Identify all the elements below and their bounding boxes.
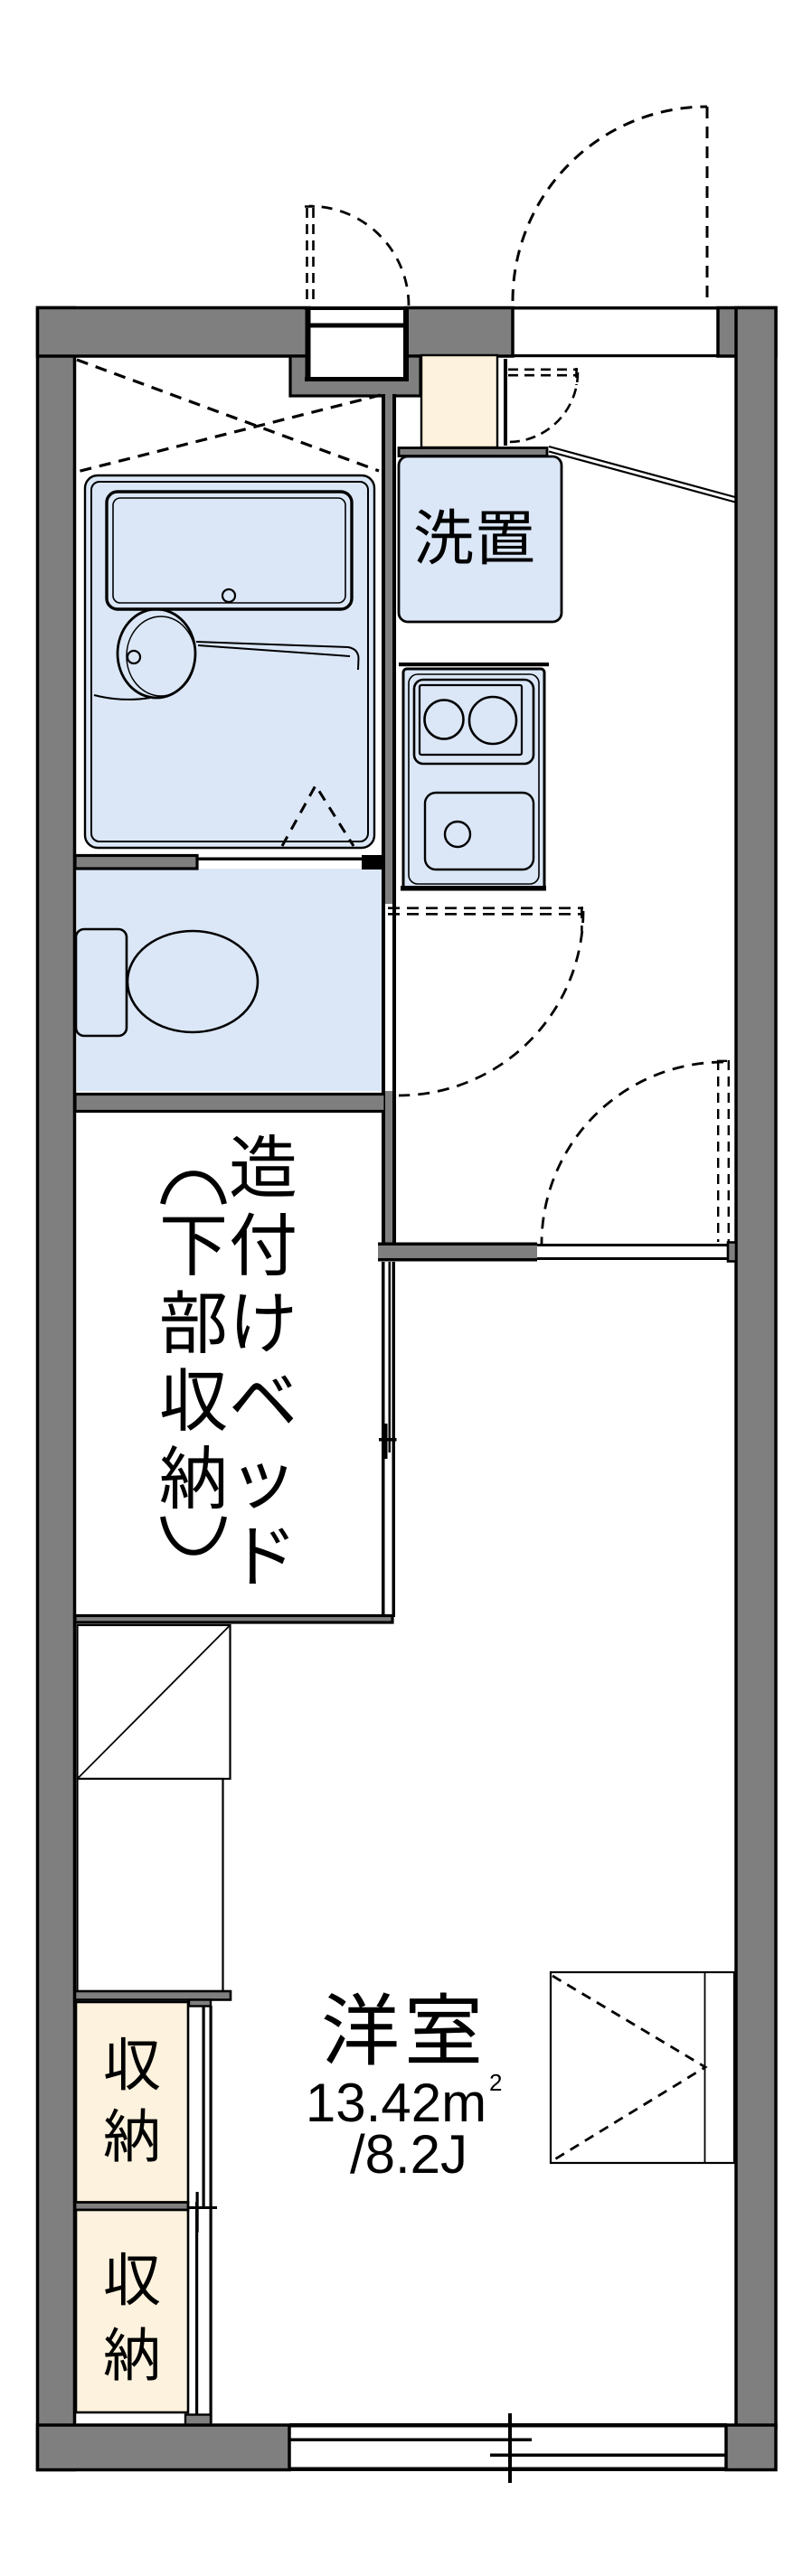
svg-text:/8.2J: /8.2J [350, 2124, 467, 2185]
svg-text:2: 2 [489, 2069, 502, 2096]
